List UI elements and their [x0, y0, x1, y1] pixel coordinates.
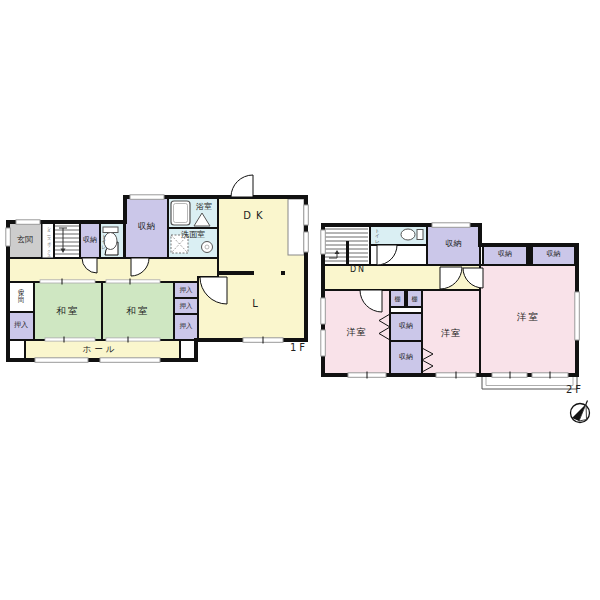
pillar-dot: [281, 271, 285, 275]
oshiire-e1-label: 押入: [174, 301, 198, 311]
dn-label: DN: [344, 264, 372, 275]
storage-big-1f-label: 収納: [125, 220, 168, 232]
bathtub-icon: [171, 201, 190, 225]
toilet-2f-icon: [401, 229, 423, 240]
stairs-2f-divider-wall: [346, 241, 349, 265]
shoebox-label: シューズボックス: [44, 224, 53, 257]
north-arrow-icon: [571, 401, 590, 423]
washitsu-east-label: 和室: [102, 304, 174, 317]
stairs-1f-shape: [54, 222, 80, 258]
corridor-1f-shape: [8, 258, 218, 282]
storage-ne1-label: 収納: [483, 249, 527, 260]
dk-label: DK: [234, 209, 272, 223]
washroom-label: 洗面室: [170, 229, 216, 240]
hall-1f-label: ホール: [50, 343, 150, 355]
dk-void-shape: [288, 199, 304, 255]
yoshitsu-center-label: 洋室: [422, 327, 480, 340]
floorplan-canvas: 玄関 シューズボックス 収納 トイレ 収納 浴室 洗面室 DK L 床の間 押入…: [0, 0, 600, 600]
toilet-2f-label: トイレ: [373, 226, 380, 244]
floor2-label: 2F: [560, 384, 590, 396]
living-label: L: [240, 297, 270, 311]
bath-label: 浴室: [190, 201, 218, 212]
floor1-label: 1F: [286, 342, 312, 354]
tana1-label: 棚: [390, 294, 405, 303]
oshiire-sw-label: 押入: [8, 319, 34, 331]
yoshitsu-east-label: 洋室: [480, 310, 577, 324]
oshiire-e2-label: 押入: [174, 321, 198, 331]
genkan-label: 玄関: [10, 234, 40, 246]
yoshitsu-west-label: 洋室: [323, 326, 390, 339]
oshiire-ne-label: 押入: [174, 285, 198, 295]
storage-c2-label: 収納: [390, 352, 422, 363]
floorplan-drawing: [0, 0, 600, 600]
storage-ne2-label: 収納: [532, 249, 575, 260]
floor1-plan: [6, 175, 309, 362]
storage-top-2f-label: 収納: [427, 238, 480, 250]
hall-end-west-shape: [8, 340, 25, 360]
hall-end-east-shape: [180, 340, 196, 360]
storage-small-1f-label: 収納: [80, 234, 100, 246]
washitsu-west-label: 和室: [34, 304, 102, 317]
storage-c1-label: 収納: [390, 321, 422, 332]
sink-icon: [202, 242, 213, 253]
toilet-1f-label: トイレ: [100, 230, 107, 254]
tana2-label: 棚: [407, 294, 422, 303]
dk-living-partial-wall: [218, 271, 254, 275]
dk-entry-door-arc: [231, 175, 253, 197]
tokonoma-label: 床の間: [14, 285, 28, 311]
